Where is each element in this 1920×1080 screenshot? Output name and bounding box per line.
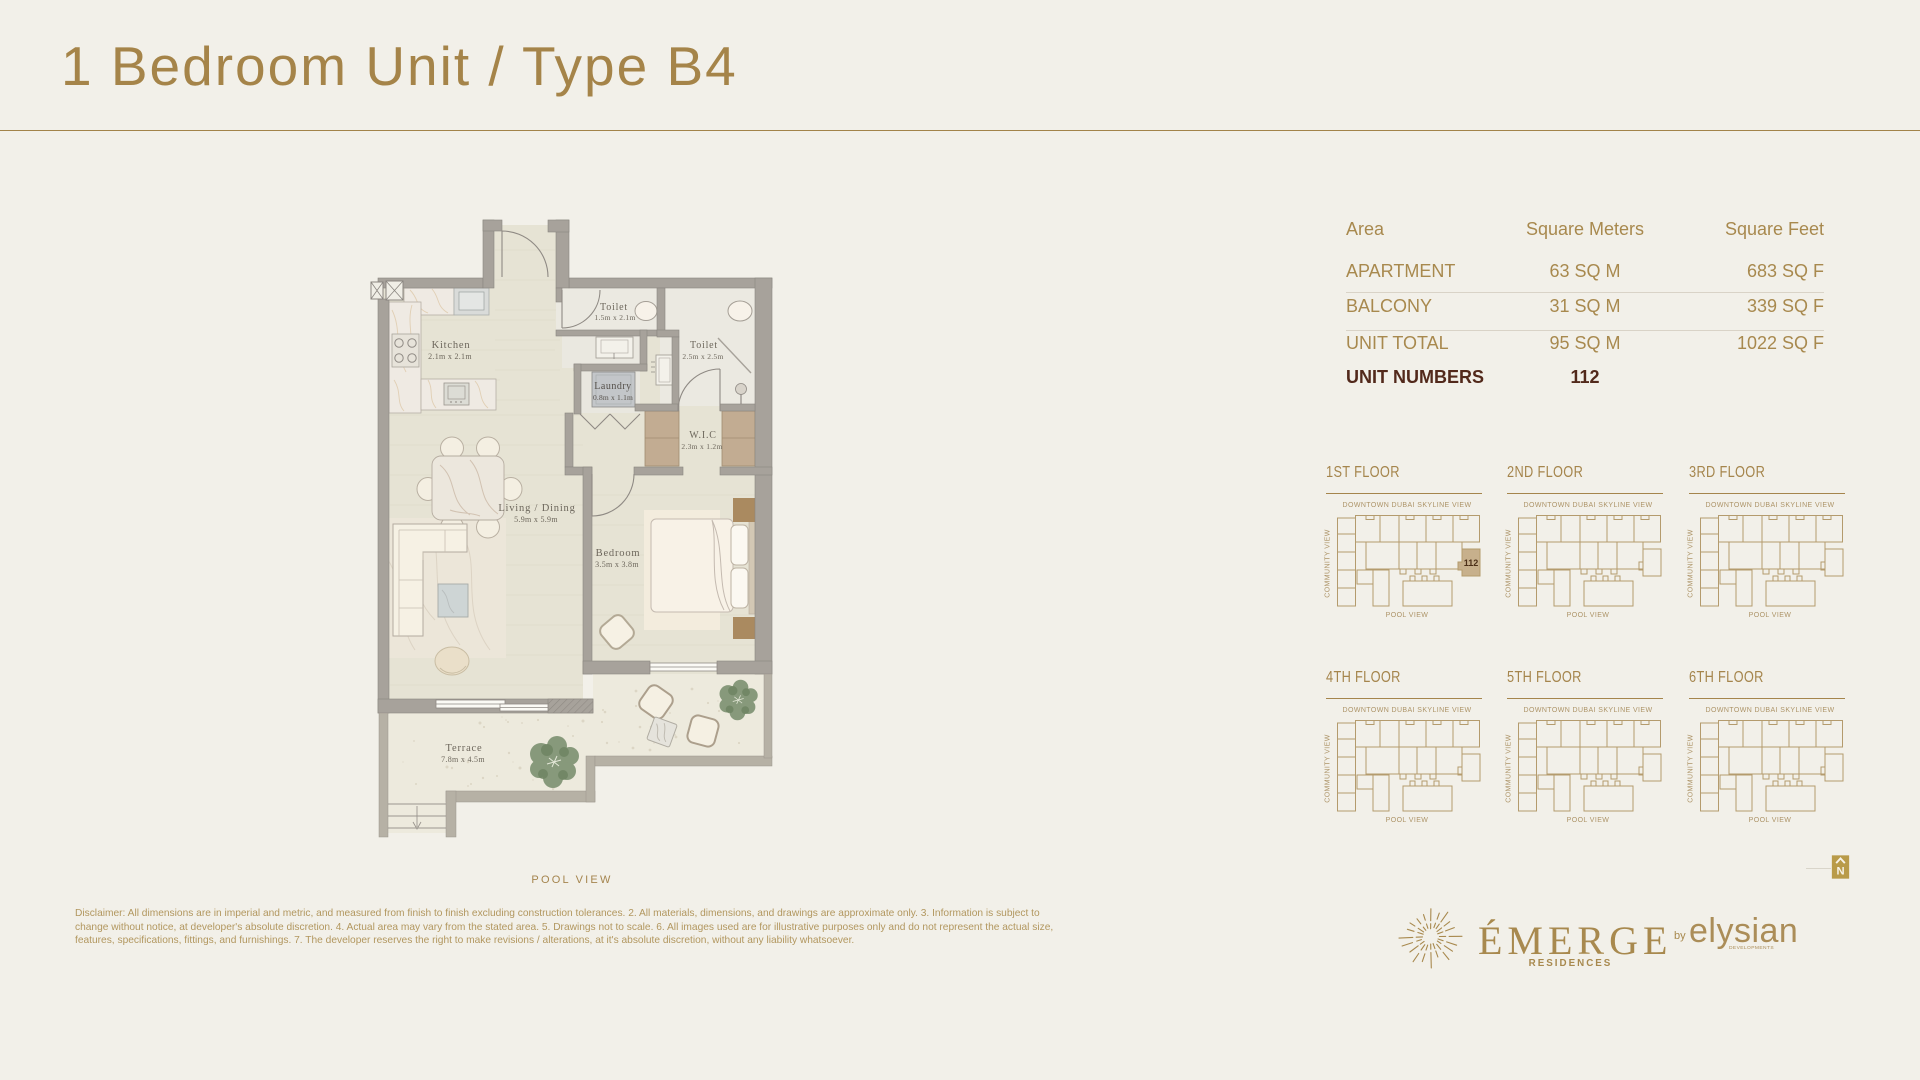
svg-text:Toilet: Toilet — [690, 340, 718, 351]
svg-text:112: 112 — [1464, 558, 1479, 568]
svg-text:2.3m x 1.2m: 2.3m x 1.2m — [681, 442, 722, 451]
svg-text:Kitchen: Kitchen — [432, 340, 471, 351]
svg-text:2.5m x 2.5m: 2.5m x 2.5m — [682, 352, 723, 361]
svg-text:0.8m x 1.1m: 0.8m x 1.1m — [593, 393, 633, 402]
svg-text:N: N — [1836, 865, 1844, 877]
svg-text:1.5m x 2.1m: 1.5m x 2.1m — [594, 313, 635, 322]
svg-text:Living / Dining: Living / Dining — [498, 503, 575, 514]
svg-text:Bedroom: Bedroom — [596, 548, 641, 559]
svg-text:7.8m x 4.5m: 7.8m x 4.5m — [441, 755, 485, 764]
svg-text:5.9m x 5.9m: 5.9m x 5.9m — [514, 515, 558, 524]
svg-text:Terrace: Terrace — [446, 743, 483, 754]
svg-text:2.1m x 2.1m: 2.1m x 2.1m — [428, 352, 472, 361]
svg-text:W.I.C: W.I.C — [689, 430, 717, 441]
svg-text:Laundry: Laundry — [594, 381, 631, 392]
svg-text:Toilet: Toilet — [600, 302, 628, 313]
svg-text:3.5m x 3.8m: 3.5m x 3.8m — [595, 560, 639, 569]
